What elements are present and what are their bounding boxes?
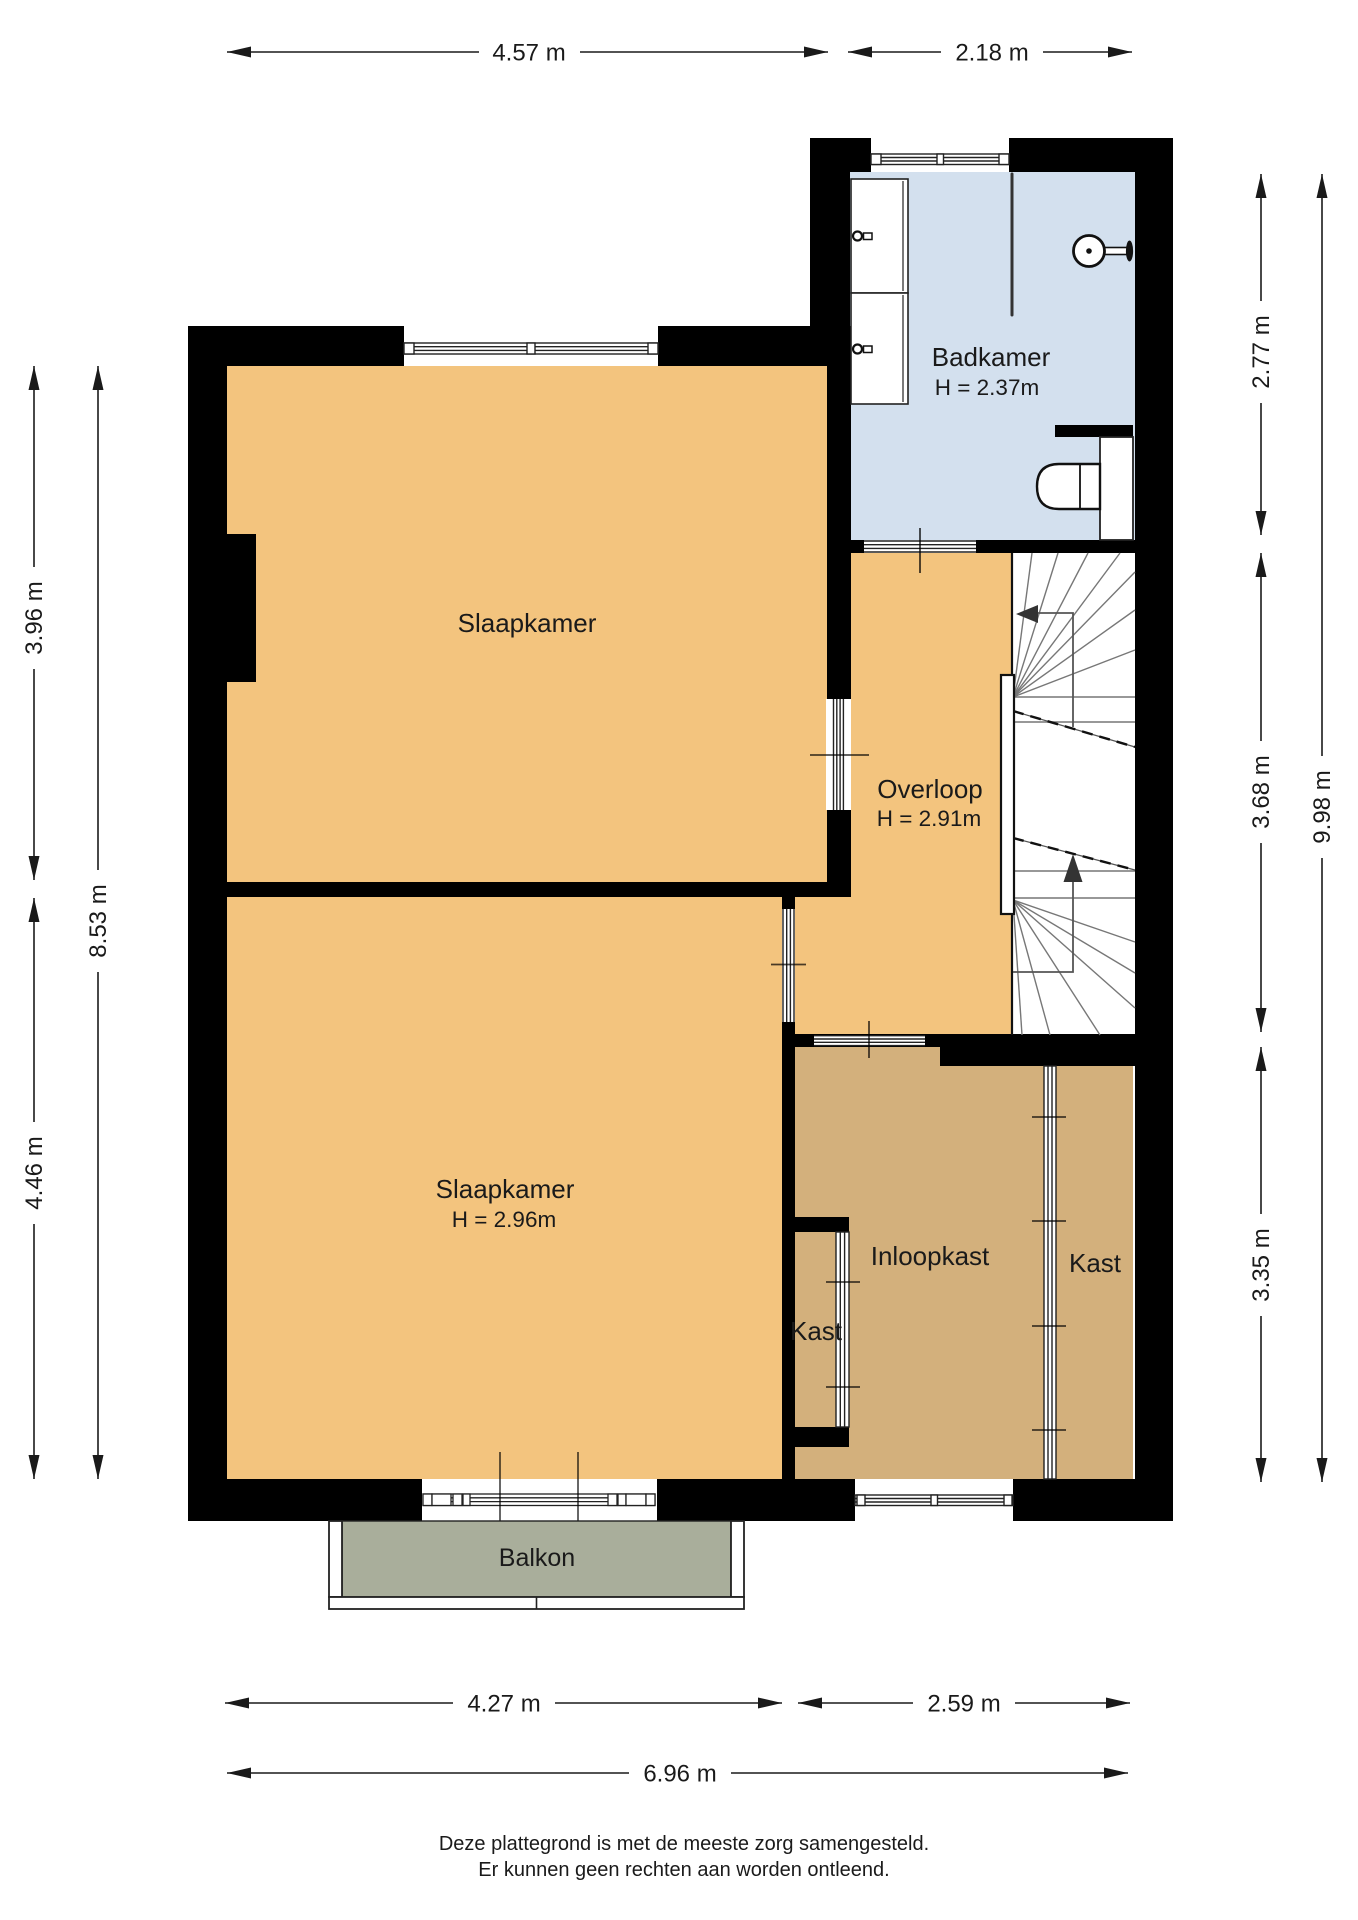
svg-text:Kast: Kast bbox=[790, 1316, 843, 1346]
svg-text:3.96 m: 3.96 m bbox=[21, 581, 48, 654]
svg-text:H = 2.37m: H = 2.37m bbox=[935, 375, 1039, 400]
svg-text:4.57 m: 4.57 m bbox=[492, 40, 565, 67]
svg-text:Slaapkamer: Slaapkamer bbox=[436, 1174, 575, 1204]
svg-text:2.18 m: 2.18 m bbox=[955, 40, 1028, 67]
svg-text:3.35 m: 3.35 m bbox=[1248, 1228, 1275, 1301]
svg-text:Deze plattegrond is met de mee: Deze plattegrond is met de meeste zorg s… bbox=[439, 1833, 929, 1855]
svg-text:Er kunnen geen rechten aan wor: Er kunnen geen rechten aan worden ontlee… bbox=[478, 1859, 889, 1881]
svg-text:Balkon: Balkon bbox=[499, 1544, 575, 1572]
svg-text:4.27 m: 4.27 m bbox=[467, 1691, 540, 1718]
svg-text:2.59 m: 2.59 m bbox=[927, 1691, 1000, 1718]
svg-text:Slaapkamer: Slaapkamer bbox=[458, 608, 597, 638]
svg-text:H = 2.96m: H = 2.96m bbox=[452, 1207, 556, 1232]
svg-text:Inloopkast: Inloopkast bbox=[871, 1241, 990, 1271]
svg-text:6.96 m: 6.96 m bbox=[643, 1761, 716, 1788]
svg-text:3.68 m: 3.68 m bbox=[1248, 755, 1275, 828]
svg-text:Kast: Kast bbox=[1069, 1248, 1122, 1278]
svg-text:Badkamer: Badkamer bbox=[932, 342, 1051, 372]
svg-text:4.46 m: 4.46 m bbox=[21, 1136, 48, 1209]
svg-text:Overloop: Overloop bbox=[877, 774, 983, 804]
svg-text:8.53 m: 8.53 m bbox=[85, 884, 112, 957]
svg-text:H = 2.91m: H = 2.91m bbox=[877, 806, 981, 831]
svg-text:2.77 m: 2.77 m bbox=[1248, 315, 1275, 388]
svg-text:9.98 m: 9.98 m bbox=[1309, 770, 1336, 843]
